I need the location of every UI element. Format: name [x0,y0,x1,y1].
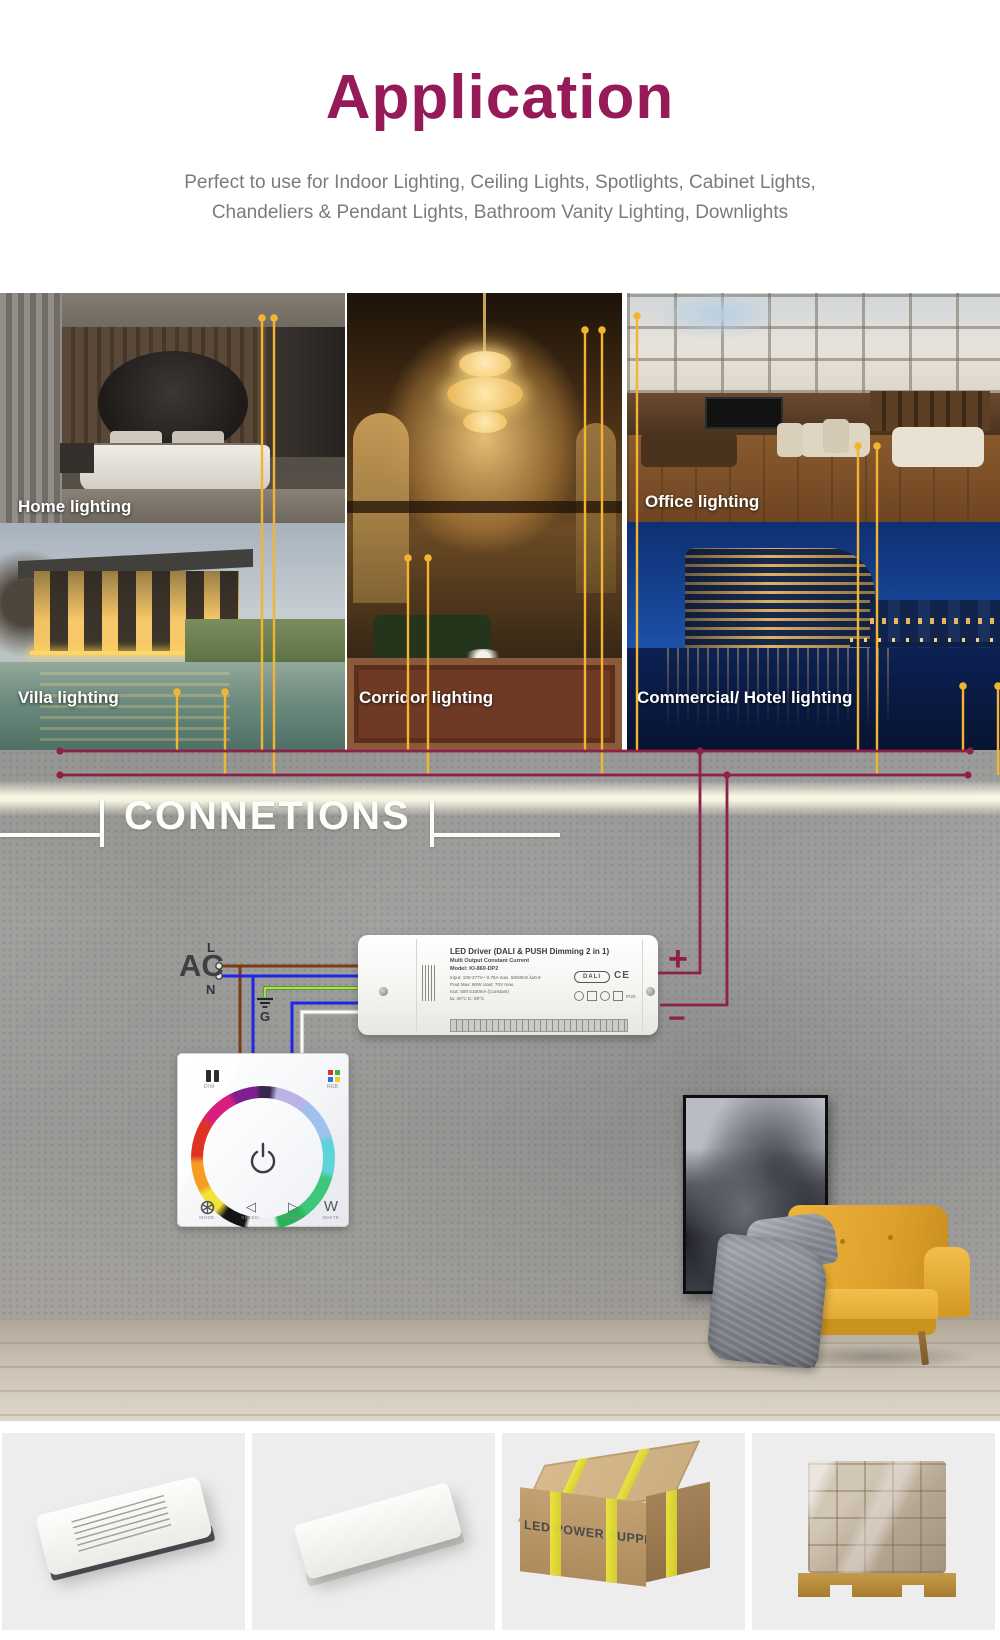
dc-minus-label: − [668,1002,686,1035]
dim-mode-icon [206,1070,220,1082]
mode-button-label: MODE [190,1215,224,1220]
product-page: Application Perfect to use for Indoor Li… [0,0,1000,1640]
live-wire-label: L [207,940,215,955]
dim-mode-label: DIM [204,1084,215,1090]
white-button-label: WHITE [314,1215,348,1220]
neutral-wire-label: N [206,982,215,997]
power-icon [246,1140,280,1174]
speed-minus-button[interactable]: ◁ [234,1200,268,1214]
ac-source-label: AC [179,948,224,984]
rgb-mode-icon [328,1070,340,1082]
rgb-mode-label: RGB [327,1084,338,1090]
lamp-wiring-overlay: + − [0,0,1000,1640]
mode-wheel-icon [200,1200,215,1215]
touch-panel-dimmer: DIM RGB MODE ◁ SPEED- ▷ SPEED+ W [177,1053,349,1227]
speed-plus-button[interactable]: ▷ [276,1200,310,1214]
ground-wire-label: G [260,1009,270,1024]
power-button[interactable] [246,1140,280,1179]
white-button[interactable]: W [314,1200,348,1214]
speed-minus-label: SPEED- [234,1215,268,1220]
speed-plus-label: SPEED+ [276,1215,310,1220]
dc-plus-label: + [668,940,688,978]
